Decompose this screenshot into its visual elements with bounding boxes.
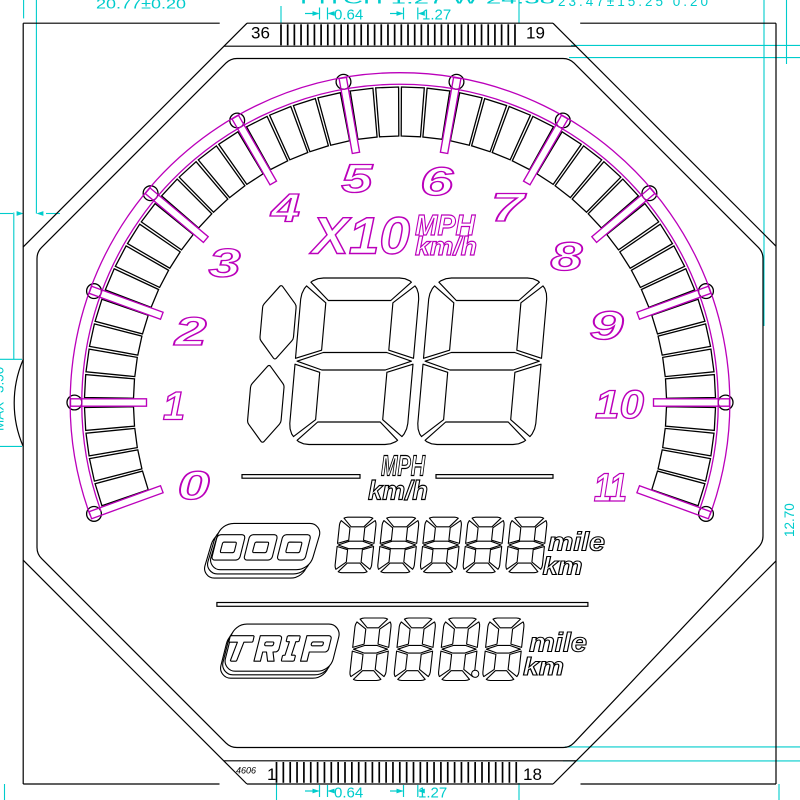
svg-text:4: 4 [270, 187, 300, 231]
svg-text:km/h: km/h [368, 476, 428, 506]
svg-text:0: 0 [178, 464, 210, 508]
svg-text:MAX: MAX [0, 402, 7, 431]
svg-text:5: 5 [341, 157, 373, 201]
svg-text:2: 2 [173, 310, 206, 354]
svg-text:36: 36 [251, 24, 270, 43]
svg-text:3.50: 3.50 [0, 367, 7, 393]
svg-text:0.64: 0.64 [334, 785, 363, 800]
svg-text:18: 18 [523, 765, 542, 784]
svg-text:7: 7 [491, 186, 527, 230]
svg-text:PITCH 1.27 W 24.38: PITCH 1.27 W 24.38 [300, 0, 555, 7]
svg-text:3: 3 [209, 241, 241, 285]
svg-text:0.64: 0.64 [334, 7, 363, 24]
svg-text:1.27: 1.27 [418, 785, 447, 800]
svg-text:X10: X10 [309, 208, 410, 266]
svg-text:4606: 4606 [236, 766, 256, 776]
svg-text:19: 19 [526, 24, 545, 43]
svg-text:km: km [543, 553, 583, 581]
svg-text:20.77±0.20: 20.77±0.20 [96, 0, 186, 12]
svg-text:km: km [523, 653, 564, 681]
svg-text:8: 8 [550, 235, 583, 279]
svg-text:9: 9 [589, 304, 624, 348]
svg-text:10: 10 [595, 383, 644, 427]
svg-text:1: 1 [267, 765, 276, 784]
svg-text:23.47±15.25 0.20: 23.47±15.25 0.20 [558, 0, 711, 9]
svg-text:1.27: 1.27 [422, 7, 451, 24]
svg-text:12.70: 12.70 [782, 503, 797, 537]
svg-text:11: 11 [594, 466, 627, 510]
svg-text:km/h: km/h [415, 231, 477, 261]
svg-text:6: 6 [420, 160, 454, 204]
svg-text:1: 1 [163, 385, 185, 429]
